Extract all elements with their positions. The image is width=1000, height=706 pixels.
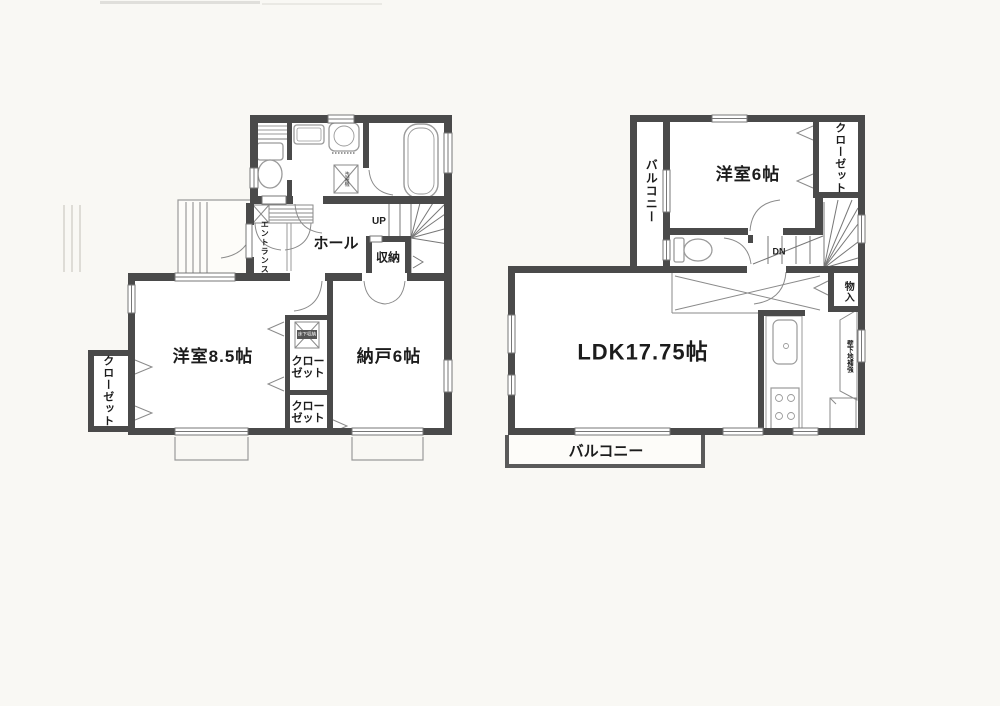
- floor1-plan: [64, 115, 452, 460]
- closet-center-upper-label: クローゼット: [290, 356, 327, 379]
- closet-center-lower-label: クローゼット: [290, 401, 327, 424]
- storage-room-label: 納戸6帖: [357, 348, 421, 366]
- toilet-2f-fixture: [674, 238, 712, 262]
- stairs-up-label: UP: [372, 217, 386, 228]
- storage-2f-label: 物入: [842, 281, 853, 303]
- bedroom-1f-label: 洋室8.5帖: [173, 348, 254, 366]
- bathtub-fixture: [404, 124, 438, 198]
- balcony-bottom-label: バルコニー: [569, 444, 644, 460]
- balcony-side-label: バルコニー: [645, 159, 658, 224]
- stairs-down-label: DN: [773, 247, 786, 256]
- floor2-floor-fill: [505, 115, 865, 468]
- hall-label: ホール: [313, 236, 358, 252]
- entrance-label: エントランス: [260, 220, 268, 274]
- closet-2f-label: クローゼット: [833, 122, 845, 194]
- approach-steps: [64, 205, 80, 272]
- storage-1f-label: 収納: [376, 252, 400, 265]
- bedroom-2f-label: 洋室6帖: [716, 166, 780, 184]
- washer-label: 洗濯機: [343, 172, 348, 187]
- wall-note-label: 壁下地補強: [845, 340, 852, 373]
- terraces-1f: [175, 437, 423, 460]
- scan-artifacts: [100, 1, 382, 5]
- floor2-plan: [505, 115, 865, 468]
- underfloor-storage-label: 床下収納: [298, 333, 316, 338]
- kitchen-fixture: [766, 316, 802, 430]
- closet-left-label: クローゼット: [101, 355, 113, 427]
- ldk-label: LDK17.75帖: [577, 340, 708, 363]
- floorplan-page: エントランス ホール UP 収納 洋室8.5帖 納戸6帖 クローゼット クローゼ…: [0, 0, 1000, 706]
